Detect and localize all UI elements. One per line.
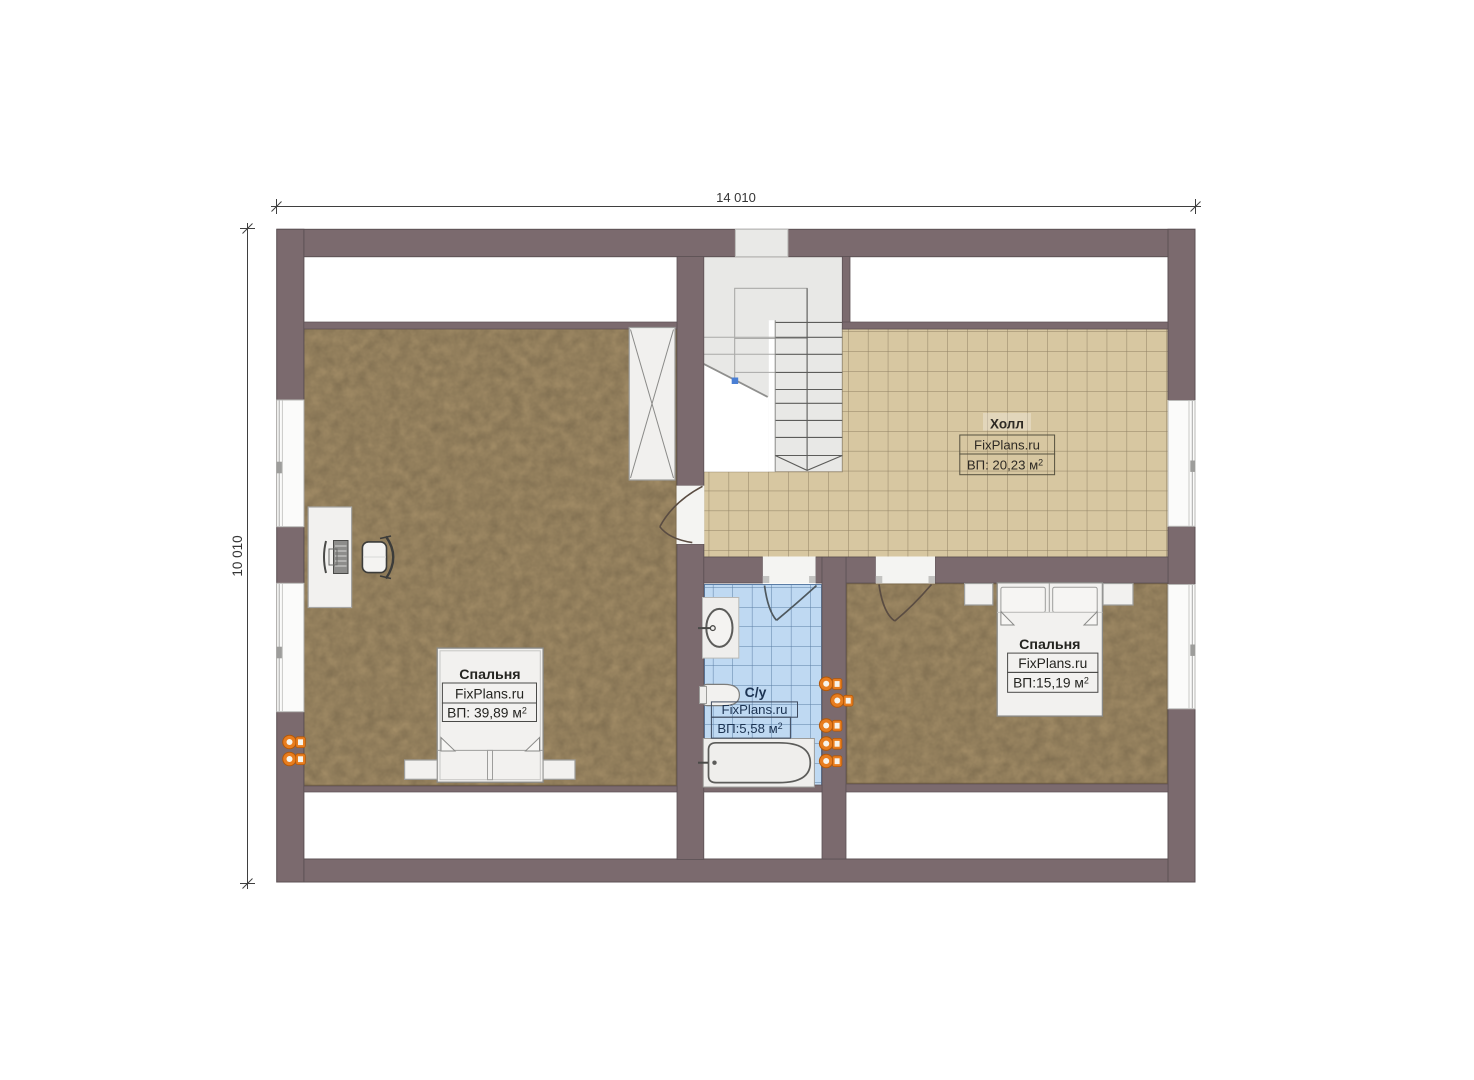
- svg-text:14 010: 14 010: [716, 190, 756, 205]
- svg-text:С/у: С/у: [745, 684, 767, 700]
- svg-text:Спальня: Спальня: [459, 667, 520, 683]
- svg-text:Спальня: Спальня: [1019, 637, 1080, 653]
- svg-text:ВП:15,19 м2: ВП:15,19 м2: [1013, 676, 1089, 691]
- svg-text:FixPlans.ru: FixPlans.ru: [1018, 656, 1087, 671]
- svg-text:FixPlans.ru: FixPlans.ru: [974, 438, 1040, 453]
- svg-text:Холл: Холл: [990, 417, 1024, 432]
- svg-text:ВП: 20,23 м2: ВП: 20,23 м2: [967, 458, 1043, 473]
- svg-text:ВП: 39,89 м2: ВП: 39,89 м2: [447, 706, 527, 721]
- svg-text:ВП:5,58 м2: ВП:5,58 м2: [717, 721, 782, 736]
- svg-text:FixPlans.ru: FixPlans.ru: [455, 687, 524, 702]
- svg-text:10 010: 10 010: [230, 535, 245, 576]
- svg-text:FixPlans.ru: FixPlans.ru: [722, 702, 788, 717]
